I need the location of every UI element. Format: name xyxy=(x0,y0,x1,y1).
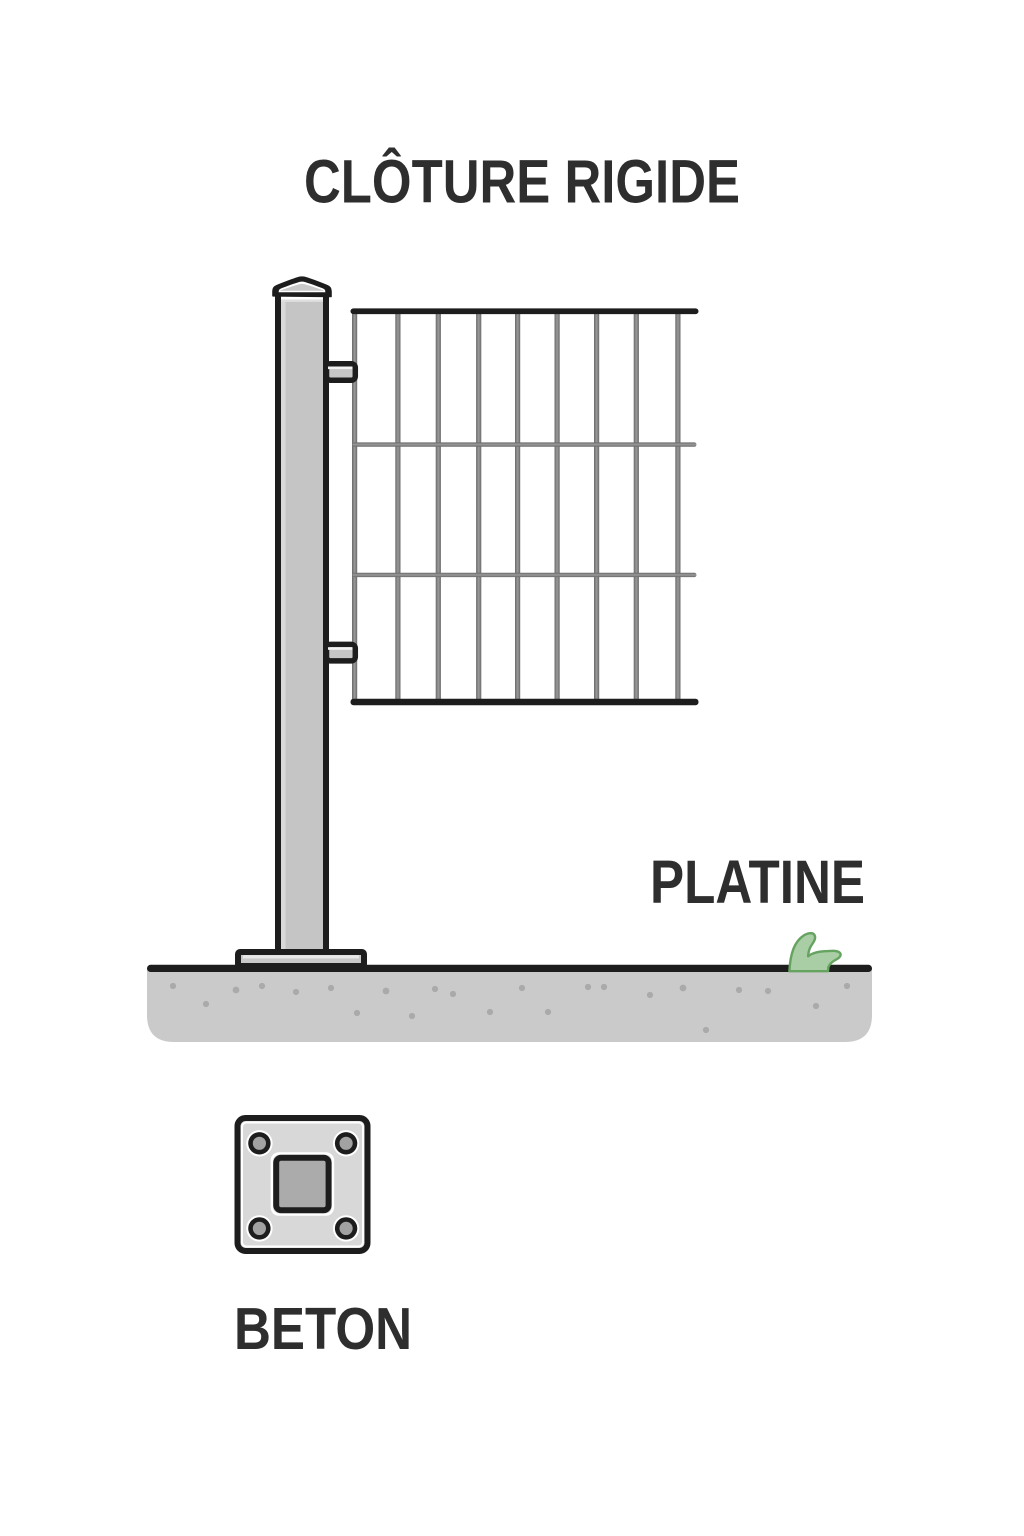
svg-text:PLATINE: PLATINE xyxy=(650,848,865,916)
svg-text:CLÔTURE RIGIDE: CLÔTURE RIGIDE xyxy=(304,148,740,217)
svg-text:BETON: BETON xyxy=(234,1295,412,1362)
